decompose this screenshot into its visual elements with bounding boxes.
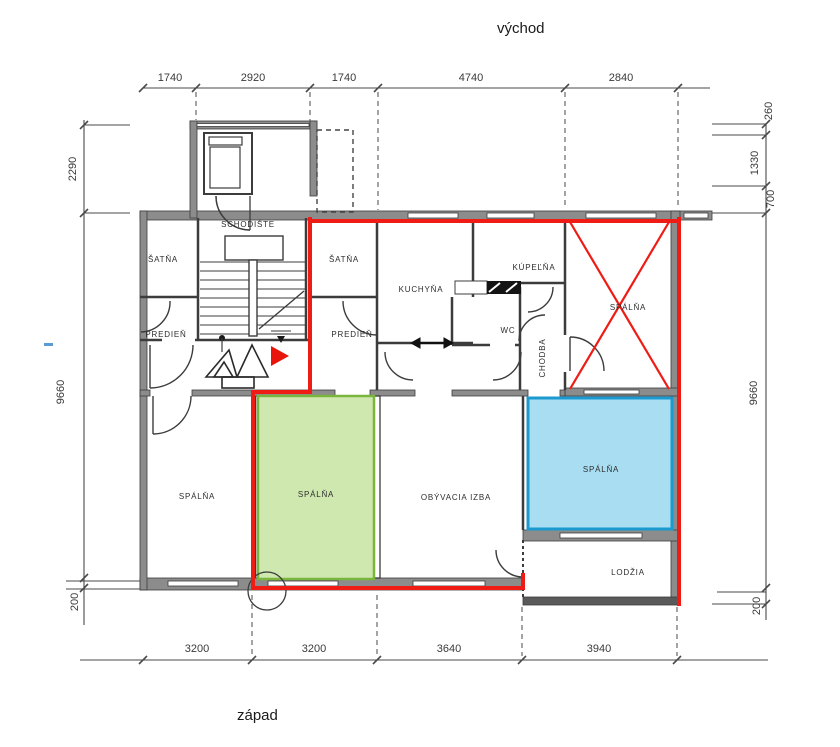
dim-top-2: 2920 (241, 72, 265, 84)
dim-top-1: 1740 (158, 72, 182, 84)
dim-right-3: 700 (765, 190, 777, 208)
staircase (200, 133, 306, 352)
room-label-satna-right: ŠATŇA (329, 255, 359, 264)
room-label-wc: WC (501, 326, 516, 335)
dim-right-5: 200 (751, 597, 763, 615)
floor-plan-canvas: východ (0, 0, 840, 747)
floor-plan-drawing: 1740 2920 1740 4740 2840 3200 3200 3640 … (0, 0, 840, 747)
room-label-kuchyna: KUCHYŇA (399, 285, 444, 294)
blue-highlight-room[interactable] (528, 398, 672, 529)
dim-top-5: 2840 (609, 72, 633, 84)
dim-top-3: 1740 (332, 72, 356, 84)
stair-landing (225, 236, 283, 260)
play-marker-icon[interactable] (271, 346, 289, 366)
room-label-schodiste: SCHODIŠTE (221, 220, 275, 229)
dim-left-2: 9660 (55, 380, 67, 404)
dim-bottom-2: 3200 (302, 643, 326, 655)
room-label-predien-right: PREDIEŇ (331, 330, 372, 339)
dim-right-4: 9660 (748, 381, 760, 405)
dimension-labels: 1740 2920 1740 4740 2840 3200 3200 3640 … (55, 72, 777, 655)
room-label-spalna-crossed: SPÁLŇA (610, 303, 646, 312)
dim-bottom-4: 3940 (587, 643, 611, 655)
room-label-spalna-left: SPÁLŇA (179, 492, 215, 501)
dim-bottom-1: 3200 (185, 643, 209, 655)
double-arrow-icon (411, 338, 453, 348)
room-label-predien-left: PREDIEŇ (145, 330, 186, 339)
dim-top-4: 4740 (459, 72, 483, 84)
room-label-spalna-blue: SPÁLŇA (583, 465, 619, 474)
elevator-shaft (204, 133, 252, 194)
dim-left-3: 200 (69, 593, 81, 611)
room-label-chodba: CHODBA (538, 338, 547, 377)
dim-left-1: 2290 (67, 157, 79, 181)
dim-right-2: 1330 (749, 151, 761, 175)
blue-dash-mark (44, 343, 53, 346)
green-highlight-room[interactable] (258, 396, 374, 579)
dim-bottom-3: 3640 (437, 643, 461, 655)
dimension-lines (66, 84, 770, 664)
dim-right-1: 260 (763, 102, 775, 120)
stair-direction-line (259, 291, 304, 329)
dashed-shaft-outline (317, 130, 353, 212)
compass-west-label: západ (237, 707, 278, 724)
room-label-lodzia: LODŽIA (611, 568, 645, 577)
room-label-spalna-green: SPÁLŇA (298, 490, 334, 499)
bathroom-fixtures (455, 281, 521, 294)
room-label-obyvacia-izba: OBÝVACIA IZBA (421, 493, 491, 502)
room-label-kupelna: KÚPEĽŇA (513, 263, 556, 272)
vestibule-shapes (206, 345, 268, 388)
room-label-satna-left: ŠATŇA (148, 255, 178, 264)
